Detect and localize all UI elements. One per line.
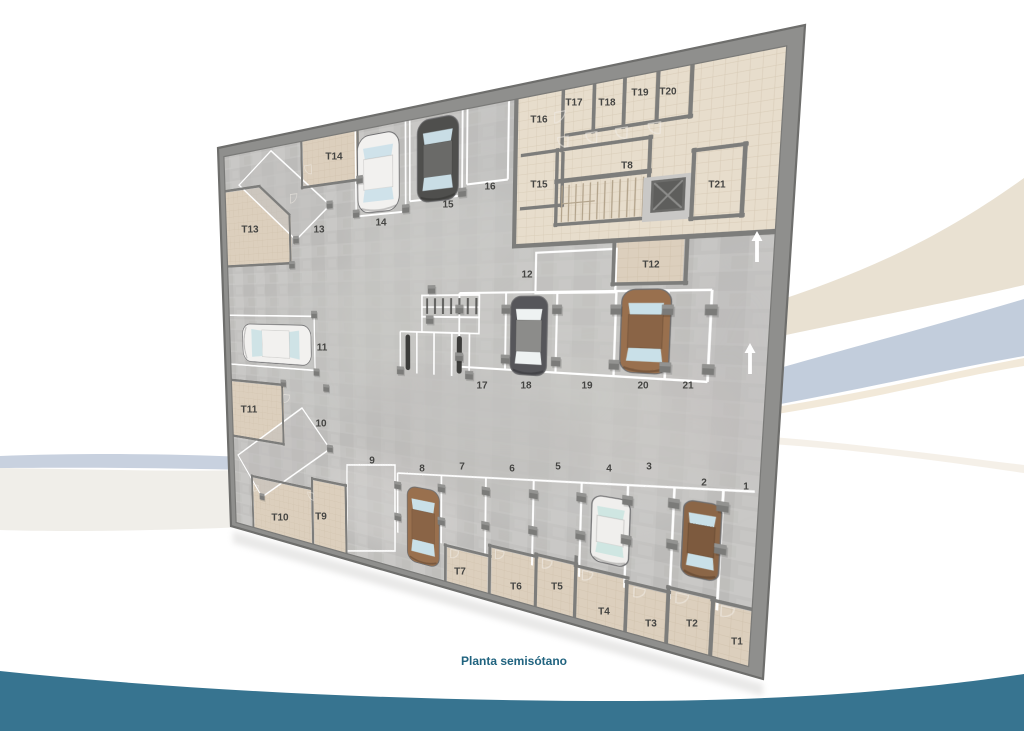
- svg-text:T6: T6: [510, 582, 522, 593]
- svg-text:19: 19: [581, 381, 593, 392]
- svg-text:T12: T12: [642, 260, 660, 271]
- svg-text:5: 5: [555, 462, 561, 473]
- svg-text:16: 16: [484, 182, 496, 193]
- svg-text:T15: T15: [530, 180, 548, 191]
- svg-text:T14: T14: [325, 152, 343, 163]
- svg-text:9: 9: [369, 456, 375, 467]
- svg-text:7: 7: [459, 462, 465, 473]
- svg-text:8: 8: [419, 464, 425, 475]
- svg-text:Planta semisótano: Planta semisótano: [461, 654, 567, 668]
- svg-text:6: 6: [509, 464, 515, 475]
- svg-text:18: 18: [520, 381, 532, 392]
- svg-text:14: 14: [375, 218, 387, 229]
- svg-text:11: 11: [317, 343, 328, 354]
- svg-text:T4: T4: [598, 607, 610, 618]
- svg-text:20: 20: [637, 381, 649, 392]
- svg-text:1: 1: [743, 482, 749, 493]
- svg-text:T18: T18: [598, 98, 616, 109]
- svg-text:2: 2: [701, 478, 707, 489]
- svg-text:T2: T2: [686, 619, 698, 630]
- svg-text:T17: T17: [565, 98, 583, 109]
- svg-text:T21: T21: [708, 180, 726, 191]
- svg-text:12: 12: [521, 270, 533, 281]
- svg-text:T13: T13: [241, 225, 259, 236]
- svg-text:T7: T7: [454, 567, 466, 578]
- svg-text:T3: T3: [645, 619, 657, 630]
- svg-text:T1: T1: [731, 637, 743, 648]
- svg-text:13: 13: [313, 225, 325, 236]
- svg-text:T16: T16: [530, 115, 548, 126]
- svg-text:10: 10: [315, 419, 327, 430]
- svg-text:17: 17: [476, 381, 488, 392]
- svg-text:3: 3: [646, 462, 652, 473]
- svg-text:T8: T8: [621, 161, 633, 172]
- svg-text:T5: T5: [551, 582, 563, 593]
- svg-text:T20: T20: [659, 87, 677, 98]
- svg-text:T10: T10: [271, 513, 289, 524]
- svg-text:T9: T9: [315, 512, 327, 523]
- svg-text:4: 4: [606, 464, 612, 475]
- svg-text:21: 21: [682, 381, 694, 392]
- svg-text:T19: T19: [631, 88, 649, 99]
- svg-text:T11: T11: [241, 405, 258, 416]
- svg-text:15: 15: [442, 200, 454, 211]
